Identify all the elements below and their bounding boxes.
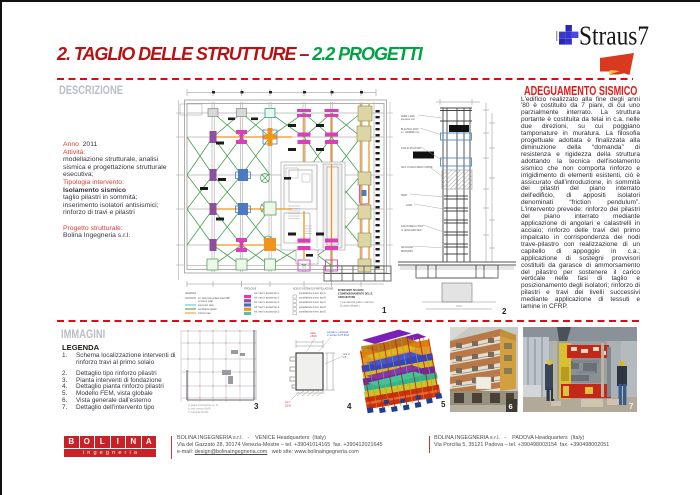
svg-text:rinf. travi in acciaio tipo 5: rinf. travi in acciaio tipo 5	[254, 310, 280, 313]
svg-text:5: 5	[441, 400, 446, 409]
svg-text:rinf. travi in acciaio tipo 1: rinf. travi in acciaio tipo 1	[254, 292, 280, 295]
svg-text:6: 6	[509, 402, 513, 411]
svg-text:d.8/20: d.8/20	[310, 335, 317, 338]
svg-text:CALASTRELLO 50x5: CALASTRELLO 50x5	[401, 225, 424, 228]
svg-text:int. travi primo solaio posa F: int. travi primo solaio posa FRP	[198, 297, 230, 300]
svg-text:4: 4	[347, 402, 352, 411]
svg-text:su travi e solai: su travi e solai	[198, 300, 213, 303]
svg-text:( vedi elaborati grafici e rel: ( vedi elaborati grafici e relazione	[340, 301, 374, 304]
svg-text:cerchiatura pilastri: cerchiatura pilastri	[198, 308, 217, 311]
svg-text:B: travi rovesce 80x60: B: travi rovesce 80x60	[188, 408, 211, 411]
svg-text:rif. ANGOLARI 80x8: rif. ANGOLARI 80x8	[401, 229, 422, 232]
svg-text:1: 1	[382, 306, 387, 315]
svg-text:rinforzo travi: rinforzo travi	[198, 312, 211, 315]
svg-text:puntellazione interv. tipo E: puntellazione interv. tipo E	[299, 310, 326, 313]
svg-text:A: platea di fondazione sp. 40: A: platea di fondazione sp. 40	[188, 404, 219, 407]
svg-text:ANGOLARI: ANGOLARI	[401, 246, 413, 249]
svg-text:in acciaio S275 80x8: in acciaio S275 80x8	[327, 334, 350, 337]
svg-text:puntellazione interv. tipo C: puntellazione interv. tipo C	[299, 301, 326, 304]
svg-text:MART.: MART.	[401, 194, 408, 197]
svg-text:puntellazione interv. tipo A: puntellazione interv. tipo A	[299, 292, 326, 295]
svg-text:2: 2	[502, 307, 507, 316]
svg-text:3: 3	[254, 402, 259, 411]
svg-text:intervento solai: intervento solai	[198, 304, 214, 307]
svg-text:RINFORZO: RINFORZO	[401, 251, 413, 253]
svg-text:C: micropali dia 200: C: micropali dia 200	[188, 411, 209, 414]
svg-text:Straus7: Straus7	[579, 24, 649, 50]
svg-text:NODI E SISTEMI DI PUNTELLAZION: NODI E SISTEMI DI PUNTELLAZIONE	[293, 288, 334, 291]
svg-text:TIPOLOGIE: TIPOLOGIE	[244, 289, 257, 291]
svg-text:puntellazione interv. tipo B: puntellazione interv. tipo B	[299, 297, 326, 300]
svg-text:25/30: 25/30	[285, 405, 292, 408]
svg-text:puntellazione interv. tipo D: puntellazione interv. tipo D	[299, 306, 326, 309]
svg-text:7: 7	[629, 402, 634, 411]
svg-text:spessore mm: spessore mm	[401, 118, 415, 121]
svg-text:LAMA: LAMA	[406, 204, 413, 207]
svg-text:rinf. travi in acciaio tipo 4: rinf. travi in acciaio tipo 4	[254, 306, 280, 309]
svg-text:LEGENDA: LEGENDA	[185, 292, 196, 295]
svg-text:rinf. travi in acciaio tipo 2: rinf. travi in acciaio tipo 2	[254, 297, 280, 300]
svg-text:TAGLIO PILASTRO: TAGLIO PILASTRO	[401, 147, 421, 150]
svg-text:di calcolo allegata ): di calcolo allegata )	[340, 305, 360, 308]
svg-text:CERCHIATURE: CERCHIATURE	[338, 296, 356, 299]
svg-text:FERR. LAMA: FERR. LAMA	[401, 115, 415, 118]
svg-text:rinf. travi in acciaio tipo 3: rinf. travi in acciaio tipo 3	[254, 301, 280, 304]
svg-text:s.t. LAMIERE mm: s.t. LAMIERE mm	[401, 131, 419, 134]
svg-text:d.6: d.6	[343, 356, 347, 359]
svg-text:BLACTELL INOX: BLACTELL INOX	[401, 128, 419, 131]
